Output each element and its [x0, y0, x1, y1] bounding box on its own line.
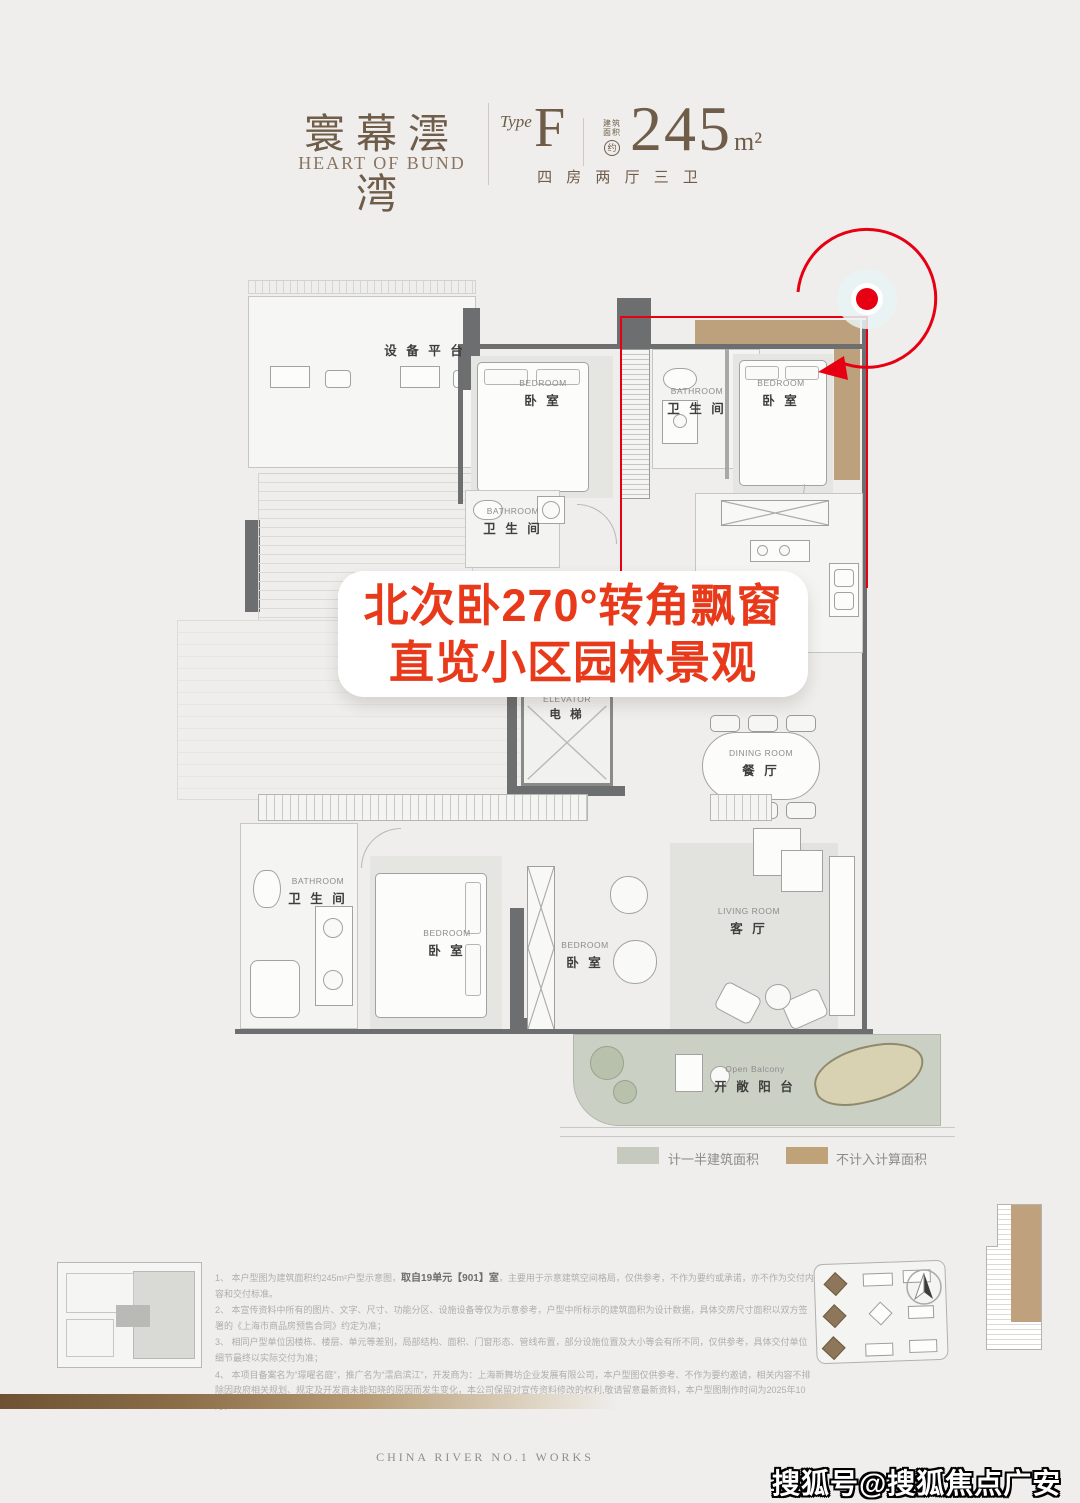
- room-name-en: BEDROOM: [387, 928, 507, 938]
- key-plan-room: [66, 1319, 114, 1357]
- site-building-outline: [909, 1339, 937, 1353]
- room-label-dining: DINING ROOM 餐 厅: [701, 748, 821, 779]
- ac-unit: [325, 370, 351, 388]
- room-label-bedroom-master: BEDROOM 卧 室: [387, 928, 507, 959]
- room-name-cn: 设 备 平 台: [350, 340, 500, 359]
- wall-segment: [510, 908, 524, 1032]
- study-chair: [610, 876, 648, 914]
- room-label-bathroom-master: BATHROOM 卫 生 间: [263, 876, 373, 907]
- legend-excluded-swatch: [786, 1147, 828, 1164]
- area-value: 245: [630, 92, 732, 166]
- arrowhead-icon: [818, 356, 848, 380]
- callout-line-2: 直览小区园林景观: [389, 634, 757, 691]
- room-name-en: BATHROOM: [263, 876, 373, 886]
- marker-dot: [856, 288, 878, 310]
- vanity-sink: [323, 970, 343, 990]
- door-swing: [577, 504, 617, 544]
- site-building-outline: [863, 1273, 893, 1287]
- coffee-table: [765, 984, 791, 1010]
- room-name-cn: 卧 室: [525, 952, 645, 971]
- layout-description: 四 房 两 厅 三 卫: [510, 166, 730, 187]
- type-label: Type: [500, 112, 532, 132]
- site-building-solid: [822, 1336, 846, 1360]
- room-name-en: DINING ROOM: [701, 748, 821, 758]
- tower-notch: [986, 1204, 998, 1247]
- room-name-cn: 开 敞 阳 台: [685, 1076, 825, 1095]
- dining-chair: [710, 715, 740, 732]
- sink-basin: [834, 592, 854, 610]
- room-name-cn: 卫 生 间: [453, 518, 573, 537]
- disclaimer-line: 1、 本户型图为建筑面积约245m²户型示意图，取自19单元【901】室，主要用…: [215, 1271, 815, 1302]
- compass-icon: [905, 1268, 943, 1306]
- legend-half-label: 计一半建筑面积: [668, 1149, 759, 1168]
- site-building-outline: [869, 1302, 893, 1326]
- room-name-en: BEDROOM: [483, 378, 603, 388]
- room-label-bedroom-nw: BEDROOM 卧 室: [483, 378, 603, 409]
- roof-hatch: [248, 280, 476, 294]
- area-figure: 245 m²: [630, 92, 762, 166]
- disclaimer-line: 3、 相同户型单位因楼栋、楼层、单元等差别，局部结构、面积、门窗形态、管线布置，…: [215, 1335, 815, 1366]
- room-label-balcony: Open Balcony 开 敞 阳 台: [685, 1064, 825, 1095]
- room-name-cn: 电 梯: [507, 706, 627, 722]
- room-name-en: Open Balcony: [685, 1064, 825, 1074]
- room-name-cn: 客 厅: [689, 918, 809, 937]
- ac-unit: [270, 366, 310, 388]
- site-building-solid: [823, 1304, 847, 1328]
- plant: [590, 1046, 624, 1080]
- legend-excluded-label: 不计入计算面积: [836, 1149, 927, 1168]
- room-name-cn: 卧 室: [387, 940, 507, 959]
- room-label-bathroom-mid: BATHROOM 卫 生 间: [453, 506, 573, 537]
- room-label-living: LIVING ROOM 客 厅: [689, 906, 809, 937]
- balcony-rim: [560, 1127, 955, 1137]
- dining-chair: [786, 715, 816, 732]
- poster: 寰幕澐湾 HEART OF BUND Type F 建筑 面积 约 245 m²…: [0, 0, 1080, 1503]
- side-table: [781, 850, 823, 892]
- room-label-elevator: ELEVATOR 电 梯: [507, 694, 627, 722]
- room-name-cn: 卧 室: [483, 390, 603, 409]
- ac-unit: [400, 366, 440, 388]
- area-prefix-circle: 约: [604, 140, 620, 156]
- gradient-bar: [0, 1394, 618, 1409]
- disclaimer-bold: 取自19单元【901】室: [401, 1273, 499, 1284]
- room-name-en: BEDROOM: [525, 940, 645, 950]
- vanity-sink: [323, 918, 343, 938]
- dining-chair: [786, 802, 816, 819]
- brand-name-en: HEART OF BUND: [282, 153, 482, 174]
- room-name-cn: 餐 厅: [701, 760, 821, 779]
- callout-line-1: 北次卧270°转角飘窗: [363, 577, 782, 634]
- header-divider: [488, 103, 489, 185]
- pillow: [465, 882, 481, 934]
- watermark: 搜狐号@搜狐焦点广安站: [772, 1462, 1080, 1503]
- wardrobe: [710, 794, 772, 821]
- room-name-cn: 卫 生 间: [263, 888, 373, 907]
- room-name-en: LIVING ROOM: [689, 906, 809, 916]
- plant: [613, 1080, 637, 1104]
- area-unit: m²: [734, 127, 762, 157]
- site-building-outline: [908, 1305, 934, 1319]
- room-name-en: BATHROOM: [453, 506, 573, 516]
- area-prefix: 建筑 面积 约: [599, 119, 625, 156]
- header-divider: [583, 118, 584, 166]
- key-plan-core: [116, 1305, 150, 1327]
- 270-rotation-annotation: [780, 212, 970, 407]
- sofa: [829, 856, 855, 1016]
- tower-unit-highlight: [1011, 1205, 1041, 1322]
- key-plan-thumbnail: [57, 1262, 202, 1368]
- area-prefix-line: 建筑: [599, 119, 625, 128]
- site-building-outline: [865, 1343, 893, 1357]
- area-prefix-line: 面积: [599, 128, 625, 137]
- room-label-equipment: 设 备 平 台: [350, 340, 500, 359]
- feature-callout: 北次卧270°转角飘窗 直览小区园林景观: [338, 571, 808, 697]
- room-label-bedroom-mid: BEDROOM 卧 室: [525, 940, 645, 971]
- legend-half-swatch: [617, 1147, 659, 1164]
- bathtub: [250, 960, 300, 1018]
- disclaimer-text: 1、 本户型图为建筑面积约245m²户型示意图，: [215, 1273, 401, 1283]
- wardrobe: [258, 794, 588, 821]
- tower-stack-diagram: [986, 1204, 1042, 1350]
- type-value: F: [534, 96, 565, 160]
- disclaimer-line: 2、 本宣传资料中所有的图片、文字、尺寸、功能分区、设施设备等仅为示意参考，户型…: [215, 1303, 815, 1334]
- site-building-solid: [823, 1272, 847, 1296]
- dining-chair: [748, 715, 778, 732]
